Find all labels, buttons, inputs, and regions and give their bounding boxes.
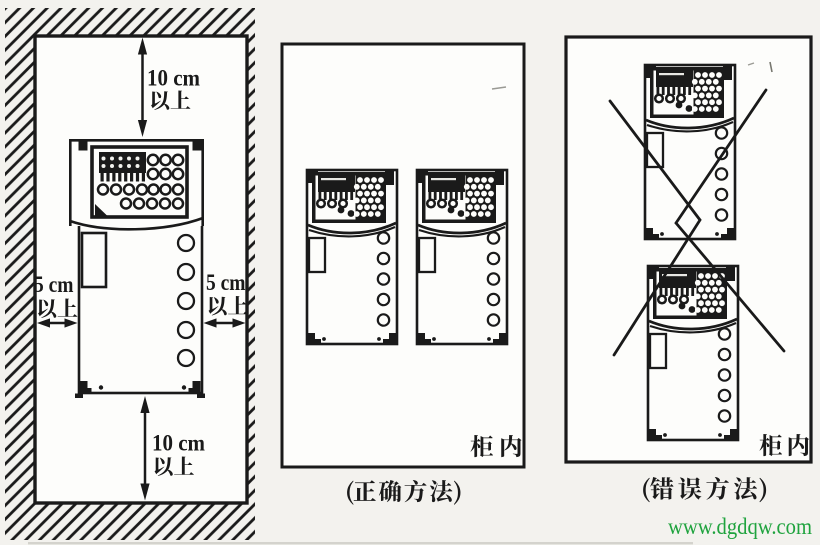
svg-text:5 cm: 5 cm	[206, 270, 246, 295]
svg-text:www.dgdqw.com: www.dgdqw.com	[668, 514, 812, 539]
svg-text:5 cm: 5 cm	[34, 272, 74, 297]
svg-text:10 cm: 10 cm	[152, 431, 205, 456]
svg-text:10 cm: 10 cm	[147, 66, 200, 91]
